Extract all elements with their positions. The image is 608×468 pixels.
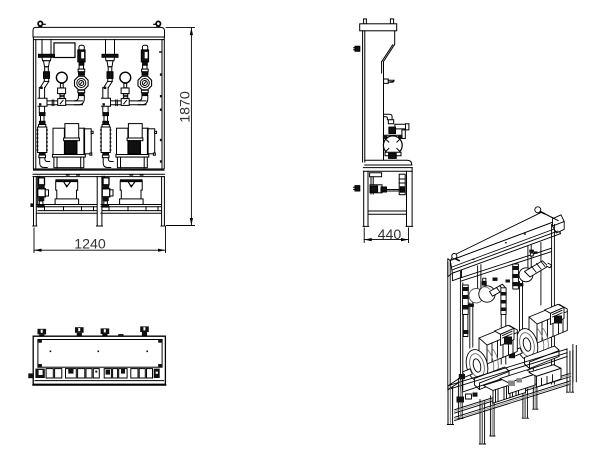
svg-text:1870: 1870 bbox=[178, 91, 194, 123]
svg-text:1240: 1240 bbox=[74, 237, 106, 253]
svg-text:440: 440 bbox=[378, 227, 402, 243]
